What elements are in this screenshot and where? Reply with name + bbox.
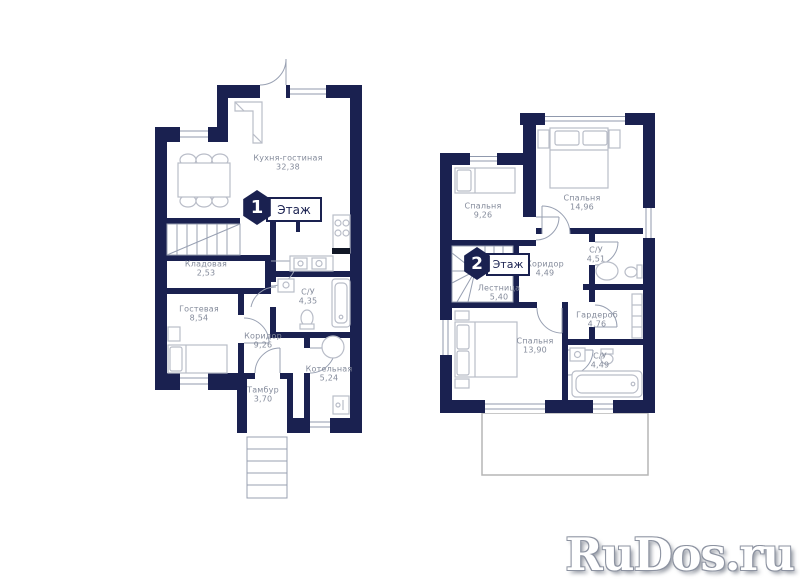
- terrace-outline: [482, 413, 648, 475]
- room-label-storage: Кладовая2,53: [185, 260, 227, 279]
- bedroom-small-bed: [455, 168, 515, 193]
- floor2-badge-label: Этаж: [486, 253, 530, 276]
- room-label-bathroom-top: С/У4,51: [587, 246, 606, 265]
- wardrobe-shelves: [632, 294, 642, 338]
- bedroom-bottom-bed: [455, 311, 517, 388]
- room-label-bathroom1: С/У4,35: [299, 288, 318, 307]
- room-label-bedroom-small: Спальня9,26: [465, 202, 502, 221]
- floor1-badge-label: Этаж: [266, 197, 322, 222]
- floor1-staircase: [167, 224, 240, 255]
- dining-table: [178, 154, 230, 207]
- guest-bed: [168, 327, 227, 373]
- floor1-plan: [150, 55, 385, 505]
- floorplan-page: Кухня-гостиная32,38 Кладовая2,53 Гостева…: [0, 0, 800, 583]
- bedroom-large-bed: [538, 128, 620, 188]
- room-label-bedroom-bottom: Спальня13,90: [517, 337, 554, 356]
- corner-sofa: [235, 102, 262, 143]
- room-label-bathroom-bottom: С/У4,49: [591, 352, 610, 371]
- room-label-stairs: Лестница5,40: [478, 284, 520, 303]
- room-label-boiler: Котельная5,24: [306, 365, 353, 384]
- room-label-vestibule: Тамбур3,70: [247, 386, 279, 405]
- room-label-wardrobe: Гардероб4,76: [576, 311, 618, 330]
- floor1-entrance-steps: [247, 437, 287, 498]
- room-label-corridor1: Коридор9,26: [244, 332, 282, 351]
- room-label-guest: Гостевая8,54: [179, 305, 219, 324]
- room-label-corridor2: Коридор4,49: [526, 260, 564, 279]
- oven: [332, 248, 350, 254]
- bathroom-top-fixtures: [596, 262, 642, 280]
- room-label-kitchen-living: Кухня-гостиная32,38: [253, 154, 322, 173]
- rudos-watermark: RuDos.ru: [565, 528, 794, 581]
- room-label-bedroom-large: Спальня14,96: [564, 194, 601, 213]
- floor2-plan: [435, 105, 660, 480]
